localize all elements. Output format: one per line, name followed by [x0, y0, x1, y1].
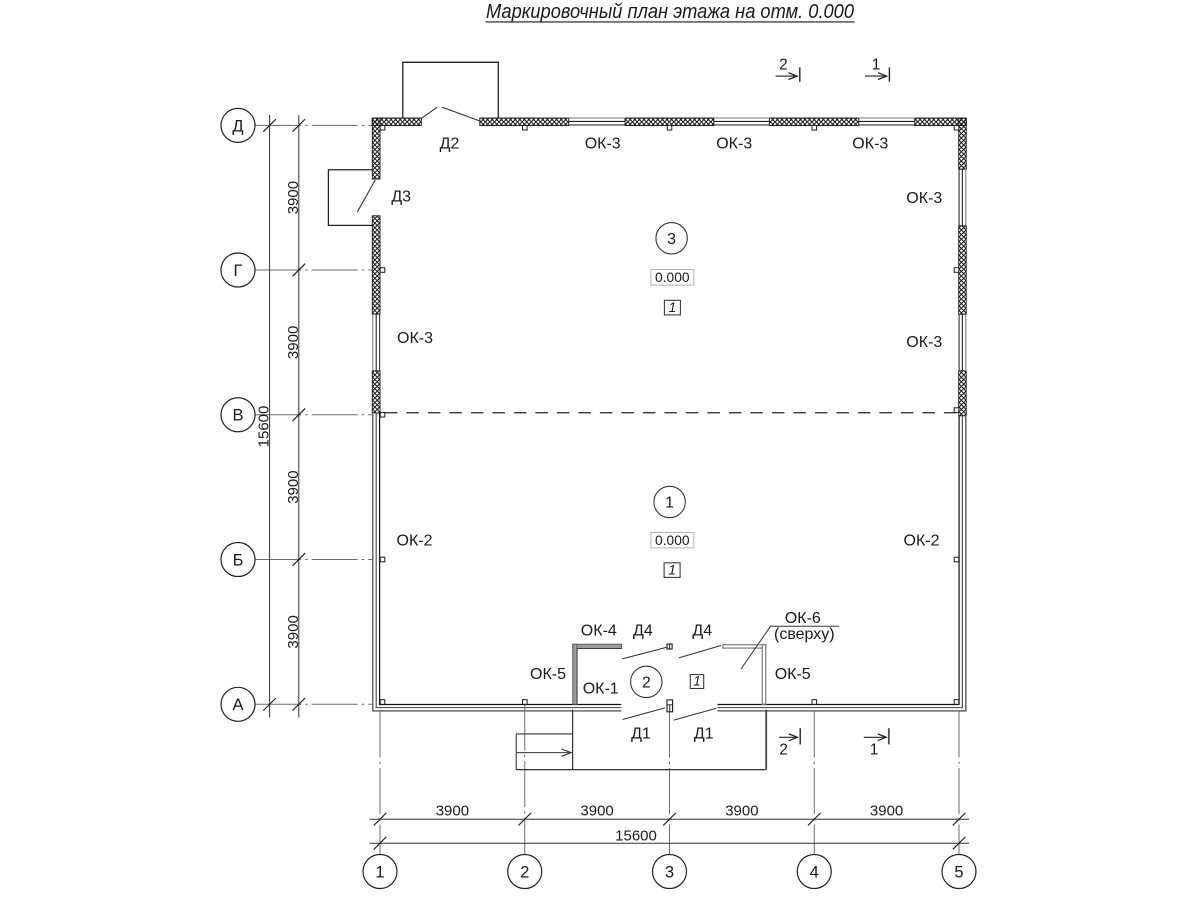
svg-text:3: 3: [665, 863, 674, 881]
svg-text:ОК-3: ОК-3: [906, 334, 942, 351]
svg-text:Б: Б: [233, 551, 244, 569]
svg-text:0.000: 0.000: [655, 270, 690, 285]
svg-text:1: 1: [665, 495, 674, 512]
svg-text:ОК-2: ОК-2: [904, 532, 940, 549]
svg-text:2: 2: [779, 57, 788, 74]
svg-text:3: 3: [667, 231, 676, 248]
svg-text:ОК-4: ОК-4: [581, 622, 617, 639]
svg-text:Д4: Д4: [633, 622, 653, 639]
svg-text:1: 1: [668, 562, 676, 577]
svg-text:(сверху): (сверху): [774, 626, 835, 643]
svg-text:В: В: [232, 407, 243, 425]
svg-text:Д3: Д3: [391, 189, 411, 206]
svg-text:15600: 15600: [256, 406, 273, 448]
svg-text:2: 2: [779, 741, 788, 758]
svg-text:5: 5: [954, 863, 963, 881]
svg-text:ОК-3: ОК-3: [906, 190, 942, 207]
svg-text:1: 1: [693, 674, 701, 689]
svg-text:Д2: Д2: [440, 136, 460, 153]
svg-text:Д1: Д1: [694, 725, 714, 742]
svg-text:3900: 3900: [725, 802, 758, 819]
svg-text:4: 4: [810, 863, 819, 881]
svg-text:ОК-5: ОК-5: [530, 666, 566, 683]
svg-text:ОК-1: ОК-1: [583, 680, 619, 697]
svg-text:ОК-2: ОК-2: [397, 533, 433, 550]
svg-text:ОК-3: ОК-3: [852, 136, 888, 153]
svg-text:1: 1: [669, 300, 677, 315]
svg-text:ОК-3: ОК-3: [397, 330, 433, 347]
svg-text:2: 2: [642, 675, 651, 692]
svg-text:ОК-6: ОК-6: [785, 610, 821, 627]
svg-text:3900: 3900: [285, 181, 302, 214]
svg-text:Д: Д: [232, 117, 243, 135]
svg-text:3900: 3900: [580, 802, 613, 819]
svg-text:ОК-5: ОК-5: [775, 666, 811, 683]
svg-text:Маркировочный план этажа на от: Маркировочный план этажа на отм. 0.000: [486, 1, 854, 23]
svg-text:3900: 3900: [285, 470, 302, 503]
svg-text:2: 2: [520, 863, 529, 881]
svg-text:ОК-3: ОК-3: [585, 136, 621, 153]
svg-text:3900: 3900: [870, 802, 903, 819]
svg-text:15600: 15600: [615, 828, 657, 845]
svg-text:Д4: Д4: [692, 622, 712, 639]
svg-text:1: 1: [375, 863, 384, 881]
svg-text:0.000: 0.000: [655, 533, 690, 548]
svg-text:3900: 3900: [285, 326, 302, 359]
svg-text:1: 1: [872, 57, 881, 74]
svg-text:3900: 3900: [285, 615, 302, 648]
svg-text:ОК-3: ОК-3: [716, 136, 752, 153]
svg-text:Д1: Д1: [631, 725, 651, 742]
svg-text:А: А: [232, 696, 243, 714]
svg-text:3900: 3900: [436, 802, 469, 819]
svg-text:Г: Г: [234, 262, 243, 280]
svg-text:1: 1: [870, 741, 879, 758]
